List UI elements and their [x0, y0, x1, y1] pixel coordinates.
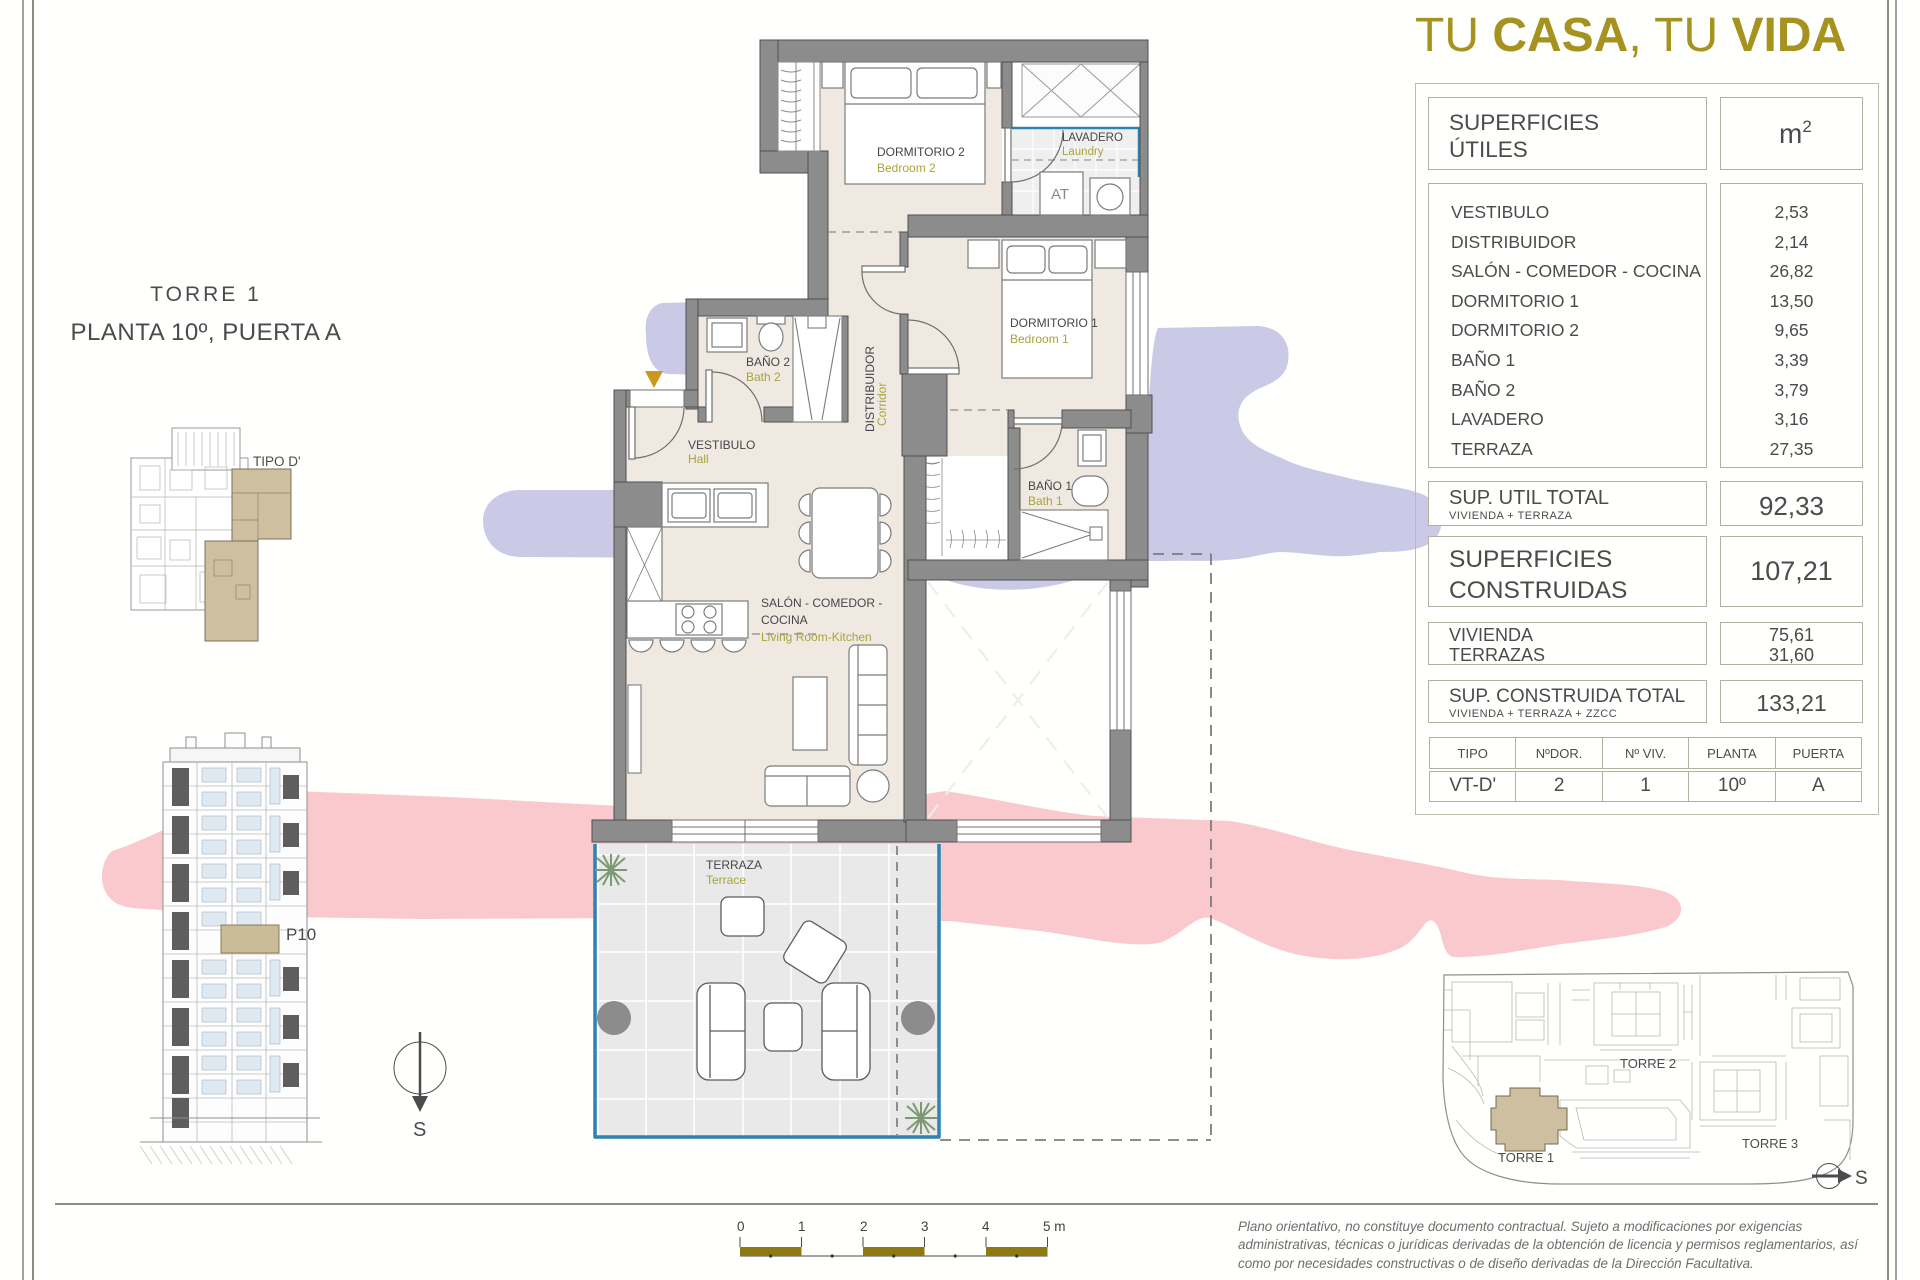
svg-text:0: 0: [737, 1219, 745, 1234]
svg-text:3: 3: [921, 1219, 929, 1234]
svg-text:Bath 1: Bath 1: [1028, 494, 1063, 508]
svg-text:1: 1: [798, 1219, 806, 1234]
svg-text:BAÑO 2: BAÑO 2: [746, 355, 790, 369]
svg-text:TIPO D': TIPO D': [253, 454, 301, 469]
svg-text:S: S: [413, 1119, 426, 1141]
svg-text:TORRE 3: TORRE 3: [1742, 1136, 1798, 1151]
svg-text:4: 4: [982, 1219, 990, 1234]
svg-text:TORRE 1: TORRE 1: [1498, 1150, 1554, 1165]
svg-text:5 m: 5 m: [1043, 1219, 1066, 1234]
svg-text:VESTIBULO: VESTIBULO: [688, 438, 755, 452]
svg-text:DORMITORIO 2: DORMITORIO 2: [877, 145, 965, 159]
svg-text:Hall: Hall: [688, 452, 709, 466]
svg-text:Bath 2: Bath 2: [746, 370, 781, 384]
svg-text:Living Room-Kitchen: Living Room-Kitchen: [761, 630, 872, 644]
svg-text:COCINA: COCINA: [761, 613, 808, 627]
svg-text:Corridor: Corridor: [875, 383, 889, 426]
svg-text:P10: P10: [286, 925, 316, 944]
svg-text:Laundry: Laundry: [1062, 146, 1104, 158]
svg-text:BAÑO 1: BAÑO 1: [1028, 479, 1072, 493]
svg-text:DORMITORIO 1: DORMITORIO 1: [1010, 316, 1098, 330]
svg-text:Bedroom 1: Bedroom 1: [1010, 332, 1069, 346]
svg-text:SALÓN - COMEDOR -: SALÓN - COMEDOR -: [761, 595, 882, 610]
svg-text:LAVADERO: LAVADERO: [1062, 132, 1123, 144]
svg-text:TERRAZA: TERRAZA: [706, 858, 762, 872]
svg-text:Bedroom 2: Bedroom 2: [877, 161, 936, 175]
svg-text:AT: AT: [1051, 186, 1069, 203]
svg-text:TORRE 2: TORRE 2: [1620, 1056, 1676, 1071]
svg-text:S: S: [1855, 1168, 1868, 1189]
svg-text:2: 2: [860, 1219, 868, 1234]
svg-text:Terrace: Terrace: [706, 873, 746, 887]
